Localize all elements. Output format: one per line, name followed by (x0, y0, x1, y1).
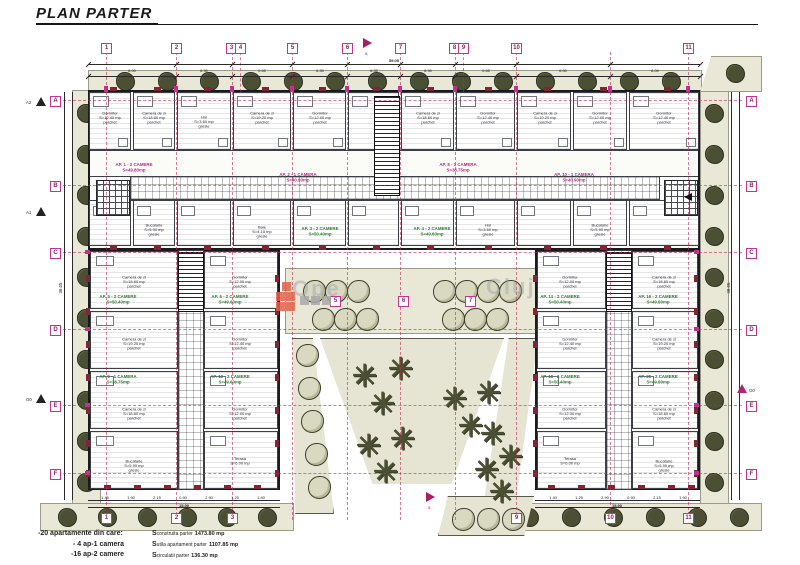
grid-bubble: F (50, 469, 61, 480)
tree-icon (578, 72, 597, 91)
wall-window-tick (275, 374, 279, 381)
fern-tree-icon: ✳ (370, 390, 404, 424)
furniture (210, 256, 226, 266)
grid-axis-line (58, 100, 742, 101)
room-label: Camera de zi S=18.60 mp parchet (644, 407, 684, 421)
entrance-arrow-icon (684, 193, 692, 201)
apartment-label: AP. 5 - 2 CAMERE S=50.40mp (93, 294, 143, 305)
wall-window-tick (110, 246, 117, 250)
dim-total-label: 15.90 (609, 503, 626, 508)
dimension-line (731, 92, 732, 500)
furniture (137, 206, 151, 216)
apartment-label: AP. 10 - 1 CAMERA S=40.90mp (549, 172, 599, 183)
area-value: 1473.80 mp (195, 531, 225, 537)
wall-window-tick (275, 440, 279, 447)
grid-axis-line (232, 52, 233, 520)
apartment-label: AP. 4 - 2 CAMERE S=49.60mp (407, 226, 457, 237)
fern-tree-icon: ✳ (390, 425, 424, 459)
room-label: Camera de zi S=18.60 mp parchet (114, 407, 154, 421)
room-label: Hol S=3.60 mp gresie (468, 223, 508, 237)
wall-window-tick (638, 485, 645, 489)
wall-window-tick (373, 246, 380, 250)
fern-tree-icon: ✳ (388, 355, 422, 389)
grid-bubble: 2 (171, 43, 182, 54)
dimension-line (535, 500, 700, 501)
furniture (181, 206, 195, 216)
wall-window-tick (86, 374, 90, 381)
legend-line-total: -20 apartamente din care: (38, 529, 138, 540)
logo-block-orange (276, 302, 285, 311)
flag-marker-icon (363, 38, 372, 48)
section-marker-icon (36, 97, 46, 106)
grid-axis-line (58, 252, 742, 253)
grid-bubble: 1 (101, 43, 112, 54)
area-line: Sutila apartament parter 1107.85 mp (152, 540, 238, 551)
furniture (137, 96, 153, 107)
wall-window-tick (664, 246, 671, 250)
logo-block-gray (322, 296, 331, 305)
wall-window-tick (485, 87, 492, 91)
grid-axis-line (58, 405, 742, 406)
room-label: Camera de zi S=18.60 mp parchet (408, 111, 448, 125)
grid-bubble: 7 (465, 296, 476, 307)
wall-line (90, 200, 698, 201)
stair-core (178, 252, 204, 312)
tree-icon (620, 72, 639, 91)
dimension-line (72, 92, 73, 500)
section-marker-icon (737, 384, 747, 393)
room-label: Dormitor S=12.00 mp parchet (550, 407, 590, 421)
wall-window-tick (694, 341, 698, 348)
logo-mark (276, 282, 330, 314)
dimension-label: 8.00 (647, 68, 664, 73)
section-marker-label: G0 (26, 397, 32, 402)
apartment-label: AP. 16 - 2 CAMERE S=49.60mp (633, 294, 683, 305)
logo-block-gray (311, 296, 320, 305)
wall-window-tick (134, 485, 141, 489)
wall-window-tick (154, 87, 161, 91)
wall-window-tick (262, 246, 269, 250)
grid-bubble: 10 (511, 43, 522, 54)
section-marker-label: A1 (26, 210, 31, 215)
dimension-label: 8.00 (124, 68, 141, 73)
wall-window-tick (427, 246, 434, 250)
grid-bubble: D (50, 325, 61, 336)
legend: -20 apartamente din care: - 4 ap-1 camer… (38, 529, 238, 562)
room-label: Camera de zi S=19.20 mp parchet (114, 337, 154, 351)
wall-window-tick (544, 246, 551, 250)
grid-axis-line (610, 52, 611, 520)
grid-axis-line (688, 52, 689, 520)
tree-icon (705, 309, 724, 328)
apartment-label: AP. 14 - 2 CAMERE S=50.40mp (535, 294, 585, 305)
room-label: Dormitor S=12.40 mp parchet (90, 111, 130, 125)
dimension-label: 8.35 (365, 68, 382, 73)
furniture (352, 206, 366, 216)
dimension-label: 6.30 (419, 68, 436, 73)
furniture (633, 206, 647, 216)
dimension-label: 2.15 (649, 495, 666, 500)
room-label: Bucatarie S=5.90 mp gresie (644, 459, 684, 473)
fern-tree-icon: ✳ (489, 478, 523, 512)
tree-icon (326, 72, 345, 91)
room-label: Terasa S=6.00 mp (550, 457, 590, 466)
room-label: Terasa S=6.00 mp (220, 457, 260, 466)
tree-icon (58, 508, 77, 527)
area-label: utila apartament parter (157, 542, 207, 548)
grid-bubble: 9 (458, 43, 469, 54)
dimension-line (88, 500, 280, 501)
wall-window-tick (86, 440, 90, 447)
wall-window-tick (262, 87, 269, 91)
furniture (638, 316, 654, 326)
grid-axis-line (240, 52, 241, 92)
furniture (333, 138, 343, 147)
room-label: Dormitor S=12.40 mp parchet (220, 337, 260, 351)
area-value: 136.30 mp (191, 553, 218, 559)
furniture (297, 96, 313, 107)
tree-icon (705, 268, 724, 287)
tree-icon (562, 508, 581, 527)
dimension-line (64, 92, 65, 500)
dimension-label: 0.65 (477, 68, 494, 73)
wall-window-tick (254, 485, 261, 489)
logo-block-orange (286, 292, 295, 301)
furniture (638, 436, 654, 446)
room-label: Camera de zi S=19.20 mp parchet (242, 111, 282, 125)
wall-window-tick (110, 87, 117, 91)
dimension-label: 1.25 (571, 495, 588, 500)
wall-window-tick (86, 341, 90, 348)
room-label: Camera de zi S=19.20 mp parchet (525, 111, 565, 125)
wall-window-tick (86, 407, 90, 414)
dimension-label: 0.90 (623, 495, 640, 500)
furniture (181, 96, 197, 107)
wall-window-tick (373, 87, 380, 91)
flag-marker-label: a (365, 51, 367, 56)
room-label: Bucatarie S=5.90 mp gresie (134, 223, 174, 237)
room-label: Baie S=4.10 mp gresie (242, 225, 282, 239)
area-summary: Sconstruita parter 1473.80 mp Sutila apa… (152, 529, 238, 562)
furniture (638, 256, 654, 266)
grid-axis-line (347, 52, 348, 520)
furniture (614, 138, 624, 147)
grid-axis-line (106, 52, 107, 520)
grid-bubble: 7 (395, 43, 406, 54)
wall-window-tick (485, 246, 492, 250)
legend-line-2room: -16 ap-2 camere (38, 550, 138, 561)
grid-bubble: C (746, 248, 757, 259)
furniture (118, 138, 128, 147)
wall-window-tick (275, 275, 279, 282)
tree-icon (258, 508, 277, 527)
grid-axis-line (463, 52, 464, 92)
grid-bubble: A (50, 96, 61, 107)
room-label: Dormitor S=12.40 mp parchet (468, 111, 508, 125)
furniture (405, 206, 419, 216)
wall-window-tick (694, 275, 698, 282)
room-label: Dormitor S=12.40 mp parchet (644, 111, 684, 125)
logo-block-gray (300, 296, 309, 305)
wall-window-tick (194, 485, 201, 489)
wall-window-tick (600, 246, 607, 250)
wall-window-tick (694, 407, 698, 414)
tree-icon (116, 72, 135, 91)
tree-icon (242, 72, 261, 91)
page-title: PLAN PARTER (36, 5, 158, 25)
room-label: Dormitor S=12.00 mp parchet (300, 111, 340, 125)
apartment-label: AP. 3 - 2 CAMERE S=50.40mp (295, 226, 345, 237)
wall-window-tick (688, 485, 695, 489)
furniture (96, 256, 114, 266)
furniture (521, 96, 537, 107)
dimension-tick (698, 62, 704, 68)
logo-block-orange (282, 282, 291, 291)
wall-window-tick (319, 87, 326, 91)
dimension-label: 2.90 (201, 495, 218, 500)
grid-bubble: 10 (605, 513, 616, 524)
section-marker-label: G0 (749, 388, 755, 393)
grid-bubble: 3 (227, 513, 238, 524)
dimension-label: 6.30 (196, 68, 213, 73)
apartment-summary: -20 apartamente din care: - 4 ap-1 camer… (38, 529, 138, 562)
flag-marker-label: a (428, 505, 430, 510)
section-marker-label: A2 (26, 100, 31, 105)
dimension-label: 6.30 (555, 68, 572, 73)
furniture (460, 206, 474, 216)
wall-window-tick (319, 246, 326, 250)
grid-axis-line (400, 52, 401, 520)
tree-icon (730, 508, 749, 527)
floor-plan-sheet: PLAN PARTER ✳✳✳✳✳✳✳✳✳✳✳✳✳8.006.300.656.3… (0, 0, 800, 565)
area-label: circulatii parter (157, 553, 190, 559)
grid-bubble: E (746, 401, 757, 412)
watermark-text: Cluj (486, 274, 536, 300)
furniture (460, 96, 476, 107)
grid-bubble: C (50, 248, 61, 259)
fern-tree-icon: ✳ (476, 379, 510, 413)
grid-bubble: 2 (171, 513, 182, 524)
apartment-label: AP. 6 - 2 CAMERE S=49.60mp (205, 294, 255, 305)
tree-icon (646, 508, 665, 527)
area-line: Sconstruita parter 1473.80 mp (152, 529, 238, 540)
wall-window-tick (664, 87, 671, 91)
grid-bubble: 1 (101, 513, 112, 524)
wall-window-tick (533, 308, 537, 315)
wall-window-tick (86, 308, 90, 315)
dimension-label: 1.45 (97, 495, 114, 500)
grid-axis-line (455, 52, 456, 520)
area-label: construita parter (157, 531, 193, 537)
grid-bubble: 6 (398, 296, 409, 307)
furniture (210, 436, 226, 446)
apartment-label: AP. 18 - 2 CAMERE S=50.40mp (535, 374, 585, 385)
wall-window-tick (533, 407, 537, 414)
tree-icon (705, 391, 724, 410)
furniture (405, 96, 421, 107)
dim-total-label: 38.05 (726, 283, 731, 294)
dimension-label: 1.25 (227, 495, 244, 500)
grid-bubble: B (50, 181, 61, 192)
wall-window-tick (694, 308, 698, 315)
dimension-label: 1.90 (675, 495, 692, 500)
furniture (297, 206, 311, 216)
furniture (558, 138, 568, 147)
stair-core (374, 96, 400, 196)
room-label: Dormitor S=12.40 mp parchet (550, 337, 590, 351)
title-rule: PLAN PARTER (36, 5, 758, 25)
wall-window-tick (548, 485, 555, 489)
wall-window-tick (204, 87, 211, 91)
dimension-label: 1.90 (123, 495, 140, 500)
furniture (278, 138, 288, 147)
room-label: Dormitor S=12.00 mp parchet (580, 111, 620, 125)
furniture (577, 96, 593, 107)
wall-window-tick (668, 485, 675, 489)
fern-tree-icon: ✳ (373, 458, 407, 492)
tree-icon (705, 186, 724, 205)
furniture (543, 436, 559, 446)
grid-bubble: 5 (287, 43, 298, 54)
tree-icon (705, 145, 724, 164)
room-label: Dormitor S=12.00 mp parchet (220, 275, 260, 289)
furniture (96, 436, 114, 446)
dimension-label: 2.15 (149, 495, 166, 500)
apartment-label: AP. 8 - 1 CAMERA S=38.75mp (433, 162, 483, 173)
room-label: Camera de zi S=19.20 mp parchet (644, 337, 684, 351)
dimension-label: 1.40 (253, 495, 270, 500)
room-label: Dormitor S=12.00 mp parchet (220, 407, 260, 421)
wall-window-tick (204, 246, 211, 250)
wall-window-tick (544, 87, 551, 91)
grid-axis-line (58, 185, 742, 186)
grid-bubble: 6 (342, 43, 353, 54)
grid-axis-line (58, 473, 742, 474)
grid-axis-line (58, 329, 742, 330)
area-line: Scirculatii parter 136.30 mp (152, 551, 238, 562)
legend-line-1room: - 4 ap-1 camera (38, 540, 138, 551)
dim-total-label: 15.90 (176, 503, 193, 508)
furniture (237, 96, 253, 107)
room-label: Bucatarie S=5.90 mp gresie (114, 459, 154, 473)
furniture (543, 256, 559, 266)
wall-window-tick (164, 485, 171, 489)
wall-window-tick (694, 374, 698, 381)
tree-icon (705, 432, 724, 451)
room-label: Hol S=3.60 mp gresie (184, 115, 224, 129)
dimension-label: 0.90 (175, 495, 192, 500)
wall-window-tick (694, 440, 698, 447)
room-label: Bucatarie S=5.90 mp gresie (580, 223, 620, 237)
dimension-label: 0.65 (254, 68, 271, 73)
grid-bubble: 11 (683, 513, 694, 524)
grid-bubble: A (746, 96, 757, 107)
dim-total-label: 38.05 (58, 283, 63, 294)
logo-block-orange (286, 302, 295, 311)
wall-window-tick (86, 275, 90, 282)
wall-window-tick (275, 407, 279, 414)
dimension-label: 6.30 (311, 68, 328, 73)
wall-window-tick (224, 485, 231, 489)
wall-window-tick (275, 341, 279, 348)
apartment-label: AP. 1 - 2 CAMERE S=49.80mp (109, 162, 159, 173)
furniture (441, 138, 451, 147)
dimension-line (739, 92, 740, 500)
area-value: 1107.85 mp (209, 542, 238, 548)
apartment-label: AP. 2 - 1 CAMERA S=40.90mp (273, 172, 323, 183)
grid-bubble: F (746, 469, 757, 480)
room-label: Camera de zi S=18.60 mp parchet (134, 111, 174, 125)
section-marker-icon (36, 394, 46, 403)
tree-icon (705, 350, 724, 369)
furniture (210, 316, 226, 326)
grid-bubble: D (746, 325, 757, 336)
wall-window-tick (154, 246, 161, 250)
dimension-label: 2.90 (597, 495, 614, 500)
grid-bubble: E (50, 401, 61, 412)
tree-icon (705, 473, 724, 492)
apartment-label: AP. 20 - 2 CAMERE S=49.60mp (633, 374, 683, 385)
wall-window-tick (600, 87, 607, 91)
room-label: Dormitor S=12.00 mp parchet (550, 275, 590, 289)
furniture (237, 206, 251, 216)
furniture (502, 138, 512, 147)
wall-window-tick (578, 485, 585, 489)
furniture (577, 206, 591, 216)
furniture (543, 316, 559, 326)
wall-window-tick (533, 440, 537, 447)
furniture (218, 138, 228, 147)
room-label: Camera de zi S=18.60 mp parchet (644, 275, 684, 289)
flag-marker-icon (426, 492, 435, 502)
furniture (96, 316, 114, 326)
room-label: Camera de zi S=18.60 mp parchet (114, 275, 154, 289)
furniture (633, 96, 649, 107)
apartment-label: AP. 9 - 1 CAMERA S=38.75mp (93, 374, 143, 385)
wall-window-tick (533, 341, 537, 348)
wall-window-tick (427, 87, 434, 91)
furniture (521, 206, 535, 216)
furniture (162, 138, 172, 147)
grid-bubble: 4 (235, 43, 246, 54)
tree-icon (726, 64, 745, 83)
logo-block-orange (276, 292, 285, 301)
furniture (352, 96, 368, 107)
tree-icon (705, 104, 724, 123)
dim-total-label: 59.05 (386, 58, 403, 63)
grid-bubble: 11 (683, 43, 694, 54)
grid-bubble: 9 (511, 513, 522, 524)
grid-axis-line (176, 52, 177, 520)
tree-icon (705, 227, 724, 246)
section-marker-icon (36, 207, 46, 216)
tree-icon (138, 508, 157, 527)
grid-bubble: B (746, 181, 757, 192)
apartment-label: AP. 12 - 2 CAMERE S=49.60mp (205, 374, 255, 385)
dimension-label: 1.40 (545, 495, 562, 500)
tree-icon (494, 72, 513, 91)
